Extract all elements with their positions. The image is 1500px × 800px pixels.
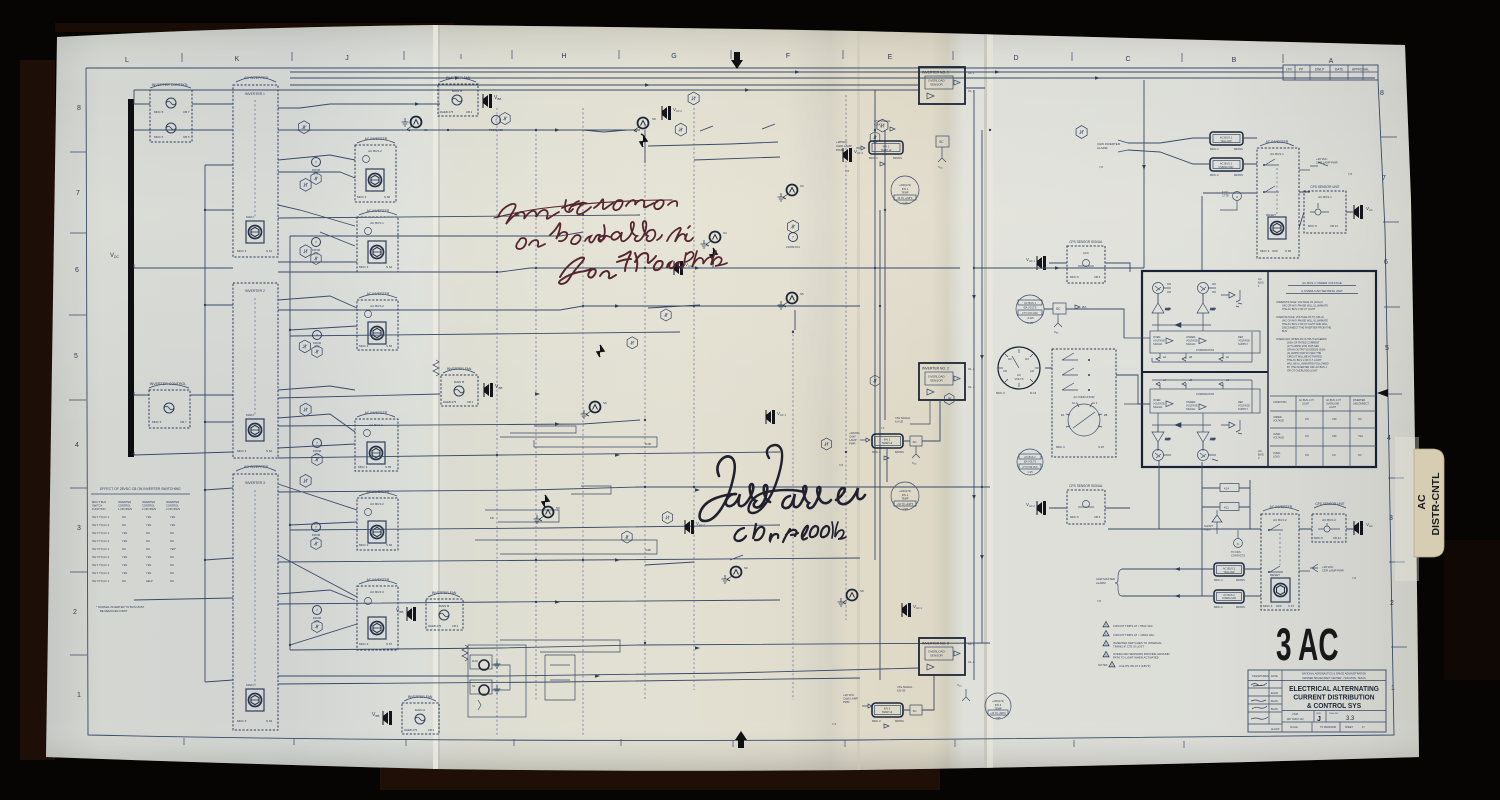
svg-text:H: H [561,53,566,60]
svg-text:CTE SIGNAL: CTE SIGNAL [895,416,911,420]
svg-text:SIZE: SIZE [1316,713,1321,715]
svg-text:LIGHTS ON AT 2 (180°F): LIGHTS ON AT 2 (180°F) [1119,664,1151,668]
svg-text:CDR LAMP PWR: CDR LAMP PWR [1322,569,1344,573]
svg-text:SUPPLY: SUPPLY [1238,342,1248,346]
svg-text:1 4/5: 1 4/5 [1027,471,1033,474]
svg-text:INVERTER NO. 1: INVERTER NO. 1 [922,71,949,75]
svg-text:+0 4/5: +0 4/5 [1026,317,1034,320]
svg-text:MAIN: MAIN [246,683,254,687]
svg-text:& OVERLOAD SENSING UNIT: & OVERLOAD SENSING UNIT [1301,289,1343,293]
svg-text:L: L [125,57,129,64]
svg-text:3: 3 [77,525,81,532]
svg-text:115: 115 [1025,358,1029,361]
svg-text:K14: K14 [1224,487,1229,491]
svg-text:CB 2: CB 2 [466,110,473,114]
svg-text:CSM: CSM [1292,712,1298,716]
svg-text:NO: NO [146,547,150,551]
svg-text:INVERTER: INVERTER [166,500,179,504]
svg-text:SC: SC [1056,307,1061,311]
svg-text:CONTROL: CONTROL [118,503,131,507]
svg-text:CB 6: CB 6 [183,135,190,139]
svg-text:MDWS: MDWS [895,450,904,454]
svg-text:YES: YES [170,515,175,519]
svg-text:SHORT: SHORT [1204,524,1213,528]
svg-text:FUNCTION: FUNCTION [92,507,106,511]
svg-text:8: 8 [1380,90,1384,97]
svg-text:AC BUS 2: AC BUS 2 [370,502,384,506]
svg-text:7,1: 7,1 [881,426,885,430]
svg-text:SCALE: SCALE [1290,726,1298,729]
svg-text:3.3: 3.3 [1346,716,1355,722]
svg-text:AC BUS 2: AC BUS 2 [1273,518,1287,522]
svg-text:AC INDICATOR: AC INDICATOR [1073,395,1095,399]
svg-text:MDC 2: MDC 2 [869,156,878,160]
svg-text:YES: YES [170,523,175,527]
svg-text:AC 2: AC 2 [1092,402,1098,405]
svg-text:NO: NO [170,563,174,567]
svg-text:MANNED SPACECRAFT CENTER ·: MANNED SPACECRAFT CENTER · HOUSTON, TEXA… [1302,677,1366,680]
svg-text:7,8: 7,8 [839,463,843,467]
svg-text:VOLTAGE: VOLTAGE [1186,403,1198,407]
svg-text:S 66: S 66 [386,344,393,348]
svg-text:INVERTER 2: INVERTER 2 [245,289,265,293]
svg-text:MDC 3: MDC 3 [1263,604,1273,608]
svg-text:ELECTRICAL ALTERNATING: ELECTRICAL ALTERNATING [1289,686,1379,693]
svg-text:INVERTER: INVERTER [142,500,155,504]
svg-text:NO: NO [170,579,174,583]
svg-text:MAIN B: MAIN B [439,604,449,608]
svg-text:NOTES: NOTES [1098,663,1108,667]
svg-text:CONTROL: CONTROL [142,503,155,507]
svg-text:1 4/5: 1 4/5 [1027,322,1033,325]
svg-text:TO PERFORM: TO PERFORM [1320,726,1336,729]
svg-text:TIMING IF CTE IS LOST: TIMING IF CTE IS LOST [1113,645,1144,649]
svg-text:S4B: S4B [645,548,651,552]
svg-text:6, MC: 6, MC [874,123,881,127]
svg-text:SENSOR: SENSOR [930,654,944,658]
svg-text:MDC 2: MDC 2 [1210,147,1219,151]
svg-text:NO: NO [122,515,126,519]
svg-text:+200(174): +200(174) [899,489,911,493]
svg-text:TEMP: TEMP [901,191,908,195]
svg-text:TO KDS: TO KDS [1231,550,1241,554]
svg-text:MDWS: MDWS [895,719,904,723]
svg-text:CB 3: CB 3 [1094,275,1101,279]
svg-text:S1: S1 [424,128,428,132]
svg-text:YES: YES [146,571,151,575]
svg-text:INV 1 TO AC 2: INV 1 TO AC 2 [92,523,110,527]
svg-text:MAIN: MAIN [246,215,254,219]
svg-text:D: D [1013,55,1018,62]
svg-text:VOLTAGE: VOLTAGE [1186,338,1198,342]
svg-text:INVERTER: INVERTER [118,500,131,504]
svg-text:3 CB OPEN: 3 CB OPEN [166,507,180,511]
svg-text:PWR: PWR [843,700,850,704]
svg-text:1: 1 [77,692,81,699]
svg-text:CONTACTS: CONTACTS [1231,554,1245,558]
svg-text:K DC: K DC [1222,190,1228,194]
svg-text:OFF: OFF [1276,604,1282,608]
svg-text:120: 120 [1030,370,1035,373]
svg-text:DISCONNECT THE INVERTER FROM T: DISCONNECT THE INVERTER FROM THE [1282,327,1331,330]
svg-text:OVER-: OVER- [1153,335,1161,339]
svg-text:OR OT OVERLOAD LIGHT: OR OT OVERLOAD LIGHT [1287,370,1318,373]
svg-text:INV 1 TO AC 2: INV 1 TO AC 2 [92,571,110,575]
svg-text:SC: SC [939,140,944,144]
svg-text:øB: øB [1189,379,1192,382]
svg-text:REF: REF [1238,400,1244,404]
svg-text:ON: ON [1305,435,1309,438]
svg-text:øA: øA [1163,356,1166,359]
svg-text:S 66: S 66 [386,543,393,547]
svg-text:øC: øC [1226,356,1229,359]
svg-text:S3: S3 [800,184,804,188]
svg-text:DWLP: DWLP [1315,68,1324,72]
svg-text:INV 3 TO AC 1: INV 3 TO AC 1 [92,547,110,551]
svg-text:6: 6 [1384,259,1388,266]
svg-text:NATIONAL AERONAUTICS & SPAC: NATIONAL AERONAUTICS & SPACE ADMINISTRAT… [1302,673,1366,676]
svg-text:PATH TO LIGHT WHEN ACTIVATED: PATH TO LIGHT WHEN ACTIVATED [1113,656,1159,660]
svg-text:ØA VOLTS: ØA VOLTS [1024,461,1037,464]
svg-text:CPS SENSOR SIGNAL: CPS SENSOR SIGNAL [1069,240,1103,244]
svg-text:S 48: S 48 [1098,445,1104,449]
svg-text:SENSOR: SENSOR [930,379,944,383]
svg-text:+200(174): +200(174) [899,183,911,187]
svg-text:SIGNAL: SIGNAL [1153,405,1163,409]
svg-text:1: 1 [1391,685,1395,692]
svg-text:OVERLOAD: OVERLOAD [1219,165,1234,169]
svg-text:5: 5 [1385,345,1389,352]
svg-text:YES: YES [146,555,151,559]
svg-text:63: 63 [472,684,476,688]
svg-text:LOAD: LOAD [1273,456,1280,459]
svg-text:OFF: OFF [1332,435,1337,438]
svg-text:+200(174): +200(174) [992,699,1004,703]
svg-text:YELLOW: YELLOW [1223,570,1235,574]
svg-text:S9: S9 [860,589,864,593]
svg-text:MDWS: MDWS [1236,605,1245,609]
svg-text:7,8: 7,8 [845,169,849,173]
svg-text:105: 105 [1003,370,1008,373]
svg-text:AMP: AMP [1165,437,1171,441]
svg-text:ØA VOLTS: ØA VOLTS [1024,306,1037,310]
svg-text:3: 3 [1389,515,1393,522]
svg-text:MDC 3: MDC 3 [359,344,369,348]
svg-text:CURRENT DISTRIBUTION: CURRENT DISTRIBUTION [1293,694,1374,701]
svg-text:4: 4 [75,442,79,449]
svg-text:MDC 3: MDC 3 [357,195,367,199]
svg-text:NO: NO [122,579,126,583]
svg-text:2 CB OPEN: 2 CB OPEN [142,507,156,511]
svg-text:MDC 2: MDC 2 [872,450,881,454]
svg-text:MDC 3: MDC 3 [237,719,247,723]
svg-text:LTR: LTR [1286,68,1292,72]
svg-text:øB: øB [1189,356,1192,359]
svg-text:MDC 3: MDC 3 [1056,445,1065,449]
svg-text:MDC 8: MDC 8 [1308,224,1317,228]
svg-text:TEMP HI: TEMP HI [882,710,893,714]
svg-text:DATE: DATE [1271,674,1278,678]
svg-text:RHEB 275: RHEB 275 [428,624,442,628]
svg-text:ØA: ØA [1082,305,1086,309]
svg-text:ØB: ØB [1104,415,1108,417]
svg-text:CB 22: CB 22 [1333,536,1341,540]
svg-text:NO: NO [170,531,174,535]
svg-text:INV 2: INV 2 [884,438,891,442]
svg-text:S8: S8 [652,117,656,121]
svg-text:SIGNATURES: SIGNATURES [1252,674,1269,678]
svg-text:OFF: OFF [1332,418,1337,421]
svg-text:AC BUS 1 UNDER VOLTAGE: AC BUS 1 UNDER VOLTAGE [1302,281,1342,285]
svg-text:YES: YES [122,555,127,559]
svg-text:ØA: ØA [1061,414,1065,417]
svg-text:6,B GE: 6,B GE [897,689,906,693]
svg-text:K: K [1237,542,1239,546]
svg-text:C: C [1125,56,1130,63]
svg-text:VOLTAGE: VOLTAGE [1238,403,1250,407]
svg-text:ALARM: ALARM [1096,581,1106,585]
svg-text:AC 1: AC 1 [1072,402,1078,405]
svg-text:2: 2 [1390,600,1394,607]
svg-text:MDWS: MDWS [1234,173,1243,177]
svg-text:INVERTER CONTROL: INVERTER CONTROL [152,83,189,87]
svg-text:NO: NO [122,523,126,527]
svg-text:ON: ON [1305,454,1309,457]
svg-text:CB 7: CB 7 [180,420,187,424]
svg-text:COMPARATOR: COMPARATOR [1196,392,1214,396]
svg-text:BE REMOVED FIRST: BE REMOVED FIRST [100,609,128,613]
svg-text:AMP: AMP [1210,437,1216,441]
svg-text:NO: NO [170,555,174,559]
svg-text:PP: PP [1299,68,1303,72]
svg-text:DISTR-CNTL: DISTR-CNTL [1430,472,1442,536]
svg-text:F: F [786,53,790,60]
svg-text:SENSOR: SENSOR [930,83,944,87]
svg-text:YES: YES [1358,435,1363,438]
svg-text:OVERLOAD: OVERLOAD [1222,597,1236,600]
svg-text:INV 3 TO AC 1: INV 3 TO AC 1 [92,579,110,583]
svg-text:MDC 5 BUS: MDC 5 BUS [92,500,106,504]
svg-text:MAIN B: MAIN B [452,89,462,93]
svg-text:4: 4 [1387,435,1391,442]
svg-text:BGAN: BGAN [1271,708,1278,711]
svg-text:S6: S6 [603,401,607,405]
svg-text:CPS SENSOR SIGNAL: CPS SENSOR SIGNAL [1069,484,1103,488]
svg-text:MDC 3: MDC 3 [359,265,369,269]
svg-text:J: J [1317,716,1321,723]
svg-text:DISCONNECT: DISCONNECT [1353,403,1369,406]
svg-text:UNDER-: UNDER- [1186,400,1196,404]
svg-text:INV 3 TO AC 2: INV 3 TO AC 2 [92,555,110,559]
svg-text:& CONTROL SYS: & CONTROL SYS [1307,703,1362,710]
svg-text:RESET: RESET [1266,213,1276,217]
svg-text:AC BUS 2: AC BUS 2 [370,304,384,308]
svg-text:RHEB 275: RHEB 275 [404,728,418,732]
svg-text:MAIN A: MAIN A [415,708,425,712]
svg-text:J: J [345,55,349,62]
svg-text:0 TO 150 VAC: 0 TO 150 VAC [1022,466,1038,469]
svg-text:VOLTS: VOLTS [1015,377,1024,381]
svg-text:S 66: S 66 [384,195,391,199]
svg-text:MDC 3: MDC 3 [359,543,369,547]
svg-text:S 67: S 67 [386,642,393,646]
svg-text:CONTROL: CONTROL [166,503,179,507]
svg-text:YELLOW: YELLOW [1220,139,1232,143]
svg-text:MDC 3: MDC 3 [237,249,247,253]
svg-text:SUPPLY: SUPPLY [1238,407,1248,411]
svg-text:CB 3: CB 3 [428,728,435,732]
svg-text:A: A [1329,58,1334,65]
svg-text:MDC 5: MDC 5 [1070,275,1079,279]
svg-text:7: 7 [76,190,80,197]
svg-text:7,8: 7,8 [1352,576,1356,580]
svg-text:INVERTER 1: INVERTER 1 [245,92,265,96]
svg-text:AMP: AMP [1210,307,1216,311]
svg-text:FLEX: FLEX [1204,528,1211,532]
svg-text:D4B: D4B [645,442,651,446]
svg-text:YES: YES [146,563,151,567]
svg-text:1 4/5: 1 4/5 [902,202,908,205]
svg-text:YES: YES [122,539,127,543]
svg-text:COMPARATOR: COMPARATOR [1196,348,1214,352]
svg-text:S 61: S 61 [266,249,273,253]
svg-text:YES: YES [122,563,127,567]
svg-text:E: E [888,54,893,61]
svg-text:MDC 3: MDC 3 [359,642,369,646]
svg-text:CPS SENSOR UNIT: CPS SENSOR UNIT [1310,185,1339,189]
svg-text:MDC 3: MDC 3 [1260,249,1270,253]
svg-text:110: 110 [1008,358,1012,361]
svg-text:AC BUS 3: AC BUS 3 [370,590,384,594]
svg-text:NO: NO [146,539,150,543]
svg-text:MDC 3: MDC 3 [996,391,1005,395]
svg-text:CB 3: CB 3 [1094,515,1101,519]
svg-text:CB 2: CB 2 [467,400,474,404]
svg-text:INVERTER 3: INVERTER 3 [245,481,265,485]
svg-text:FROM K11: FROM K11 [786,245,800,249]
svg-text:S 62: S 62 [266,449,273,453]
svg-text:32 TO +248°F: 32 TO +248°F [897,197,913,200]
svg-text:MDWS: MDWS [893,156,902,160]
svg-text:6: 6 [75,267,79,274]
svg-text:CIRCUIT TRIPS AT ≈ 130±2 VAC: CIRCUIT TRIPS AT ≈ 130±2 VAC [1113,633,1154,637]
svg-text:øA: øA [1163,379,1166,382]
svg-text:SHEET: SHEET [1345,726,1354,729]
svg-text:M 13: M 13 [1030,391,1037,395]
svg-text:A: A [1236,195,1238,199]
svg-text:OVER-: OVER- [1153,398,1161,402]
svg-text:øC: øC [1226,379,1229,382]
svg-text:NO: NO [170,571,174,575]
svg-text:D4A: D4A [472,659,478,663]
svg-text:YES: YES [122,571,127,575]
svg-text:S 67: S 67 [1288,604,1295,608]
svg-text:S 64: S 64 [386,265,393,269]
svg-text:NO: NO [122,547,126,551]
svg-text:NO: NO [1358,418,1362,421]
svg-text:CB 13: CB 13 [1330,224,1338,228]
svg-text:DATE: DATE [1335,68,1343,72]
svg-text:CDR LAMP PWR: CDR LAMP PWR [1316,161,1338,165]
svg-text:EGGN: EGGN [1271,692,1278,695]
svg-text:INV 2: INV 2 [902,493,909,497]
svg-text:INV 3: INV 3 [995,703,1002,707]
svg-text:7: 7 [1382,175,1386,182]
svg-text:INV 1 TO AC 1: INV 1 TO AC 1 [92,563,110,567]
svg-text:K11: K11 [1224,506,1229,510]
svg-text:INVERTER NO. 3: INVERTER NO. 3 [922,642,949,646]
svg-text:SIGNAL: SIGNAL [1186,342,1196,346]
svg-text:2: 2 [73,609,77,616]
svg-text:ALLOW: ALLOW [1271,728,1280,731]
svg-text:MDC 3: MDC 3 [358,465,368,469]
svg-text:1 5/5: 1 5/5 [902,508,908,511]
svg-text:MDC 2: MDC 2 [1210,173,1219,177]
svg-text:SWITCH: SWITCH [92,503,102,507]
svg-text:3 AC: 3 AC [1276,619,1339,669]
svg-text:6,A GE: 6,A GE [895,420,903,424]
svg-text:UNDER-: UNDER- [1186,335,1196,339]
svg-text:AC BUS 2: AC BUS 2 [1024,456,1036,459]
svg-text:NO: NO [170,539,174,543]
svg-text:HELP: HELP [146,579,153,583]
svg-text:MDC 2: MDC 2 [1214,605,1223,609]
svg-text:MDC 8: MDC 8 [1314,536,1323,540]
svg-text:+32 TO +248°F: +32 TO +248°F [897,503,914,506]
svg-text:APPROVAL: APPROVAL [1352,68,1369,72]
svg-text:OFF: OFF [1272,249,1278,253]
svg-text:AMP: AMP [1165,307,1171,311]
svg-text:BGAN: BGAN [1271,700,1278,703]
svg-text:K: K [235,56,240,63]
svg-text:MDC 5: MDC 5 [1070,515,1079,519]
svg-text:MDC 5: MDC 5 [154,110,164,114]
svg-text:I: I [460,54,462,61]
svg-text:CTE SIGNAL: CTE SIGNAL [897,685,913,689]
svg-text:NO: NO [1358,454,1362,457]
svg-text:INV 1: INV 1 [902,187,909,191]
svg-text:INV 2 TO AC 1: INV 2 TO AC 1 [92,531,110,535]
svg-text:VOLTAGE: VOLTAGE [1153,401,1165,405]
svg-text:RESET: RESET [1270,573,1280,577]
svg-text:MDWS: MDWS [1236,578,1245,582]
svg-text:TEMP HI: TEMP HI [881,148,892,152]
svg-text:ON: ON [1332,454,1336,457]
svg-text:S 60: S 60 [1285,249,1292,253]
svg-text:1B: 1B [490,516,494,520]
svg-text:RHEB 275: RHEB 275 [443,400,457,404]
svg-text:TEMP: TEMP [901,497,908,501]
svg-text:S9: S9 [744,566,748,570]
svg-text:LIGHT: LIGHT [1329,406,1337,409]
svg-text:MDC 5: MDC 5 [154,135,164,139]
svg-text:RHEB 275: RHEB 275 [440,110,454,114]
svg-text:EFFECT OF 28VDC CB ON INVERTER: EFFECT OF 28VDC CB ON INVERTER SWITCHING [100,487,181,491]
svg-text:NO: NO [146,531,150,535]
svg-text:SIGNAL: SIGNAL [1153,342,1163,346]
svg-text:7,8: 7,8 [1348,172,1352,176]
svg-text:INV 1 TO AC 1: INV 1 TO AC 1 [92,515,110,519]
svg-text:1 CB OPEN: 1 CB OPEN [118,507,132,511]
svg-text:CB 4: CB 4 [452,624,459,628]
svg-text:S9: S9 [556,506,560,510]
svg-text:YES: YES [122,531,127,535]
svg-text:BUS: BUS [1282,330,1287,333]
svg-text:1 5/5: 1 5/5 [995,718,1001,720]
svg-text:SIGNAL: SIGNAL [1186,407,1196,411]
svg-text:REF: REF [1238,335,1244,339]
svg-text:CONDITION: CONDITION [1273,401,1287,404]
